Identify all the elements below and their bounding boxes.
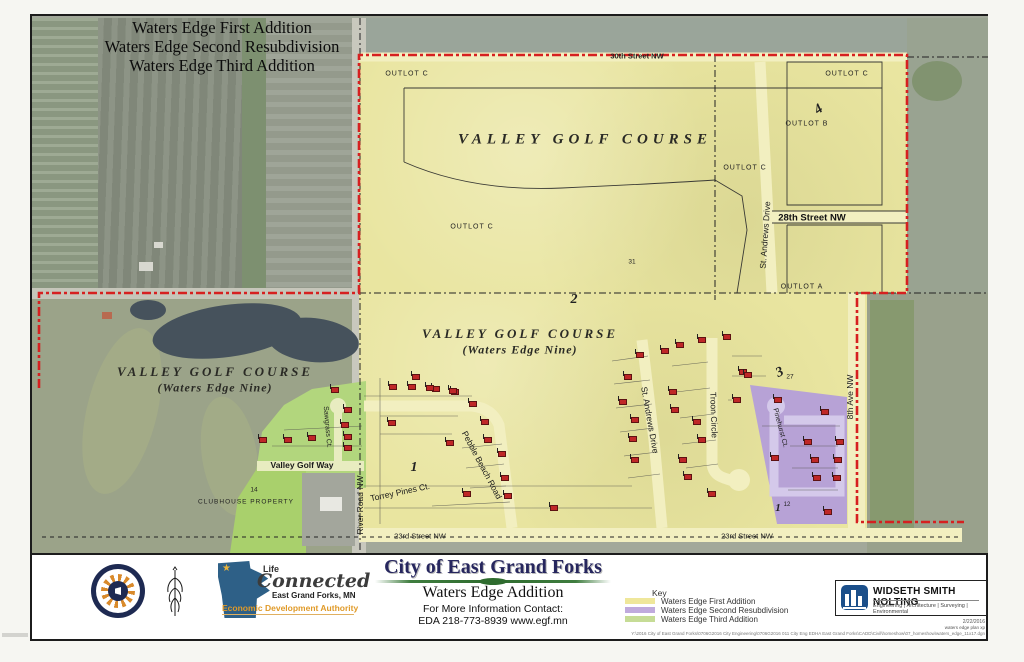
plat-title-block: Waters Edge First Addition Waters Edge S… — [72, 18, 372, 75]
golf-course-label-top: VALLEY GOLF COURSE — [458, 132, 712, 149]
house-marker — [821, 409, 829, 415]
outlot-a-label: OUTLOT A — [781, 284, 824, 291]
phase-1-label: 1 — [775, 502, 781, 514]
house-marker — [629, 436, 637, 442]
phase-1-label: 1 — [411, 460, 418, 476]
house-marker — [498, 451, 506, 457]
wsn-tagline: Engineering | Architecture | Surveying |… — [873, 600, 979, 615]
house-marker — [744, 372, 752, 378]
house-marker — [813, 475, 821, 481]
lot-14-label: 14 — [250, 487, 257, 494]
city-title: City of East Grand Forks — [373, 556, 613, 579]
lot-27-label: 27 — [786, 374, 793, 381]
house-marker — [811, 457, 819, 463]
house-marker — [259, 437, 267, 443]
house-marker — [669, 389, 677, 395]
street-label-troon-circle: Troon Circle — [708, 392, 720, 438]
building — [139, 262, 153, 271]
house-marker — [661, 348, 669, 354]
house-marker — [723, 334, 731, 340]
house-marker — [412, 374, 420, 380]
street-label-30th: 30th Street NW — [610, 52, 663, 61]
building — [102, 312, 112, 319]
house-marker — [636, 352, 644, 358]
wheat-icon — [160, 566, 190, 620]
map-area: VALLEY GOLF COURSE VALLEY GOLF COURSE (W… — [32, 16, 988, 553]
house-marker — [774, 397, 782, 403]
house-marker — [676, 342, 684, 348]
outlot-c-label: OUTLOT C — [825, 71, 868, 78]
house-marker — [671, 407, 679, 413]
house-marker — [426, 385, 434, 391]
map-linework — [32, 16, 988, 553]
golf-course-label-center: VALLEY GOLF COURSE — [422, 326, 618, 342]
house-marker — [481, 419, 489, 425]
house-marker — [408, 384, 416, 390]
house-marker — [344, 434, 352, 440]
street-label-23rd-left: 23rd Street NW — [394, 532, 446, 541]
building — [320, 497, 342, 511]
waters-edge-nine-label-left: (Waters Edge Nine) — [157, 381, 272, 396]
house-marker — [684, 474, 692, 480]
house-marker — [631, 457, 639, 463]
house-marker — [771, 455, 779, 461]
house-marker — [834, 457, 842, 463]
contact-line-1: For More Information Contact: — [373, 603, 613, 615]
eda-seal-center — [108, 581, 128, 601]
house-marker — [344, 407, 352, 413]
corner-note-smudge — [2, 633, 28, 637]
widseth-smith-nolting-logo: WIDSETH SMITH NOLTING Engineering | Arch… — [835, 580, 987, 616]
clubhouse-property-label: CLUBHOUSE PROPERTY — [198, 499, 294, 506]
house-marker — [698, 437, 706, 443]
house-marker — [469, 401, 477, 407]
plat-title-line-1: Waters Edge First Addition — [72, 18, 372, 37]
connected-logo-text: Connected — [257, 570, 370, 592]
golf-course-label-left: VALLEY GOLF COURSE — [117, 364, 313, 380]
east-grand-forks-mn-label: East Grand Forks, MN — [272, 591, 356, 600]
house-marker — [693, 419, 701, 425]
legend-label: Waters Edge First Addition — [661, 597, 755, 606]
house-marker — [284, 437, 292, 443]
house-marker — [331, 387, 339, 393]
street-label-23rd-right: 23rd Street NW — [721, 532, 773, 541]
plat-map-sheet: VALLEY GOLF COURSE VALLEY GOLF COURSE (W… — [0, 0, 1024, 662]
house-marker — [619, 399, 627, 405]
outlot-c-label: OUTLOT C — [450, 224, 493, 231]
house-marker — [698, 337, 706, 343]
building — [154, 242, 163, 248]
street-label-8th-ave: 8th Ave NW — [845, 375, 855, 420]
house-marker — [308, 435, 316, 441]
house-marker — [501, 475, 509, 481]
legend-swatch-second-resub — [625, 607, 655, 613]
economic-development-authority-label: Economic Development Authority — [222, 603, 354, 615]
house-marker — [550, 505, 558, 511]
legend-swatch-third-addition — [625, 616, 655, 622]
plat-title-line-2: Waters Edge Second Resubdivision — [72, 37, 372, 56]
outlot-c-label: OUTLOT C — [723, 165, 766, 172]
house-marker — [708, 491, 716, 497]
addition-title: Waters Edge Addition — [373, 584, 613, 602]
house-marker — [836, 439, 844, 445]
house-marker — [504, 493, 512, 499]
waters-edge-nine-label-center: (Waters Edge Nine) — [462, 343, 577, 358]
footer-divider — [32, 553, 988, 555]
green-divider — [375, 580, 611, 583]
legend-swatch-first-addition — [625, 598, 655, 604]
outlot-b-label: OUTLOT B — [786, 121, 829, 128]
house-marker — [446, 440, 454, 446]
house-marker — [733, 397, 741, 403]
house-marker — [833, 475, 841, 481]
plot-file-path: Y:\2016 City of East Grand Forks\0706G20… — [631, 631, 985, 636]
street-label-28th: 28th Street NW — [778, 213, 846, 224]
lot-12-label: 12 — [784, 502, 791, 508]
contact-line-2: EDA 218-773-8939 www.egf.mn — [373, 615, 613, 627]
plot-note: waters edge plan xp — [945, 625, 985, 630]
legend-label: Waters Edge Third Addition — [661, 615, 758, 624]
house-marker — [344, 445, 352, 451]
house-marker — [624, 374, 632, 380]
house-marker — [341, 422, 349, 428]
street-label-river-road: River Road NW — [355, 475, 365, 534]
lot-31-label: 31 — [628, 259, 635, 266]
house-marker — [389, 384, 397, 390]
street-label-valley-golf-way: Valley Golf Way — [271, 460, 334, 470]
house-marker — [484, 437, 492, 443]
house-marker — [449, 388, 457, 394]
house-marker — [631, 417, 639, 423]
house-marker — [388, 420, 396, 426]
legend-label: Waters Edge Second Resubdivision — [661, 606, 788, 615]
house-marker — [679, 457, 687, 463]
house-marker — [463, 491, 471, 497]
outlot-c-label: OUTLOT C — [385, 71, 428, 78]
phase-2-label: 2 — [571, 292, 578, 308]
house-marker — [804, 439, 812, 445]
wsn-skyline-icon — [841, 585, 868, 610]
plat-title-line-3: Waters Edge Third Addition — [72, 56, 372, 75]
star-icon: ★ — [222, 563, 231, 574]
house-marker — [824, 509, 832, 515]
